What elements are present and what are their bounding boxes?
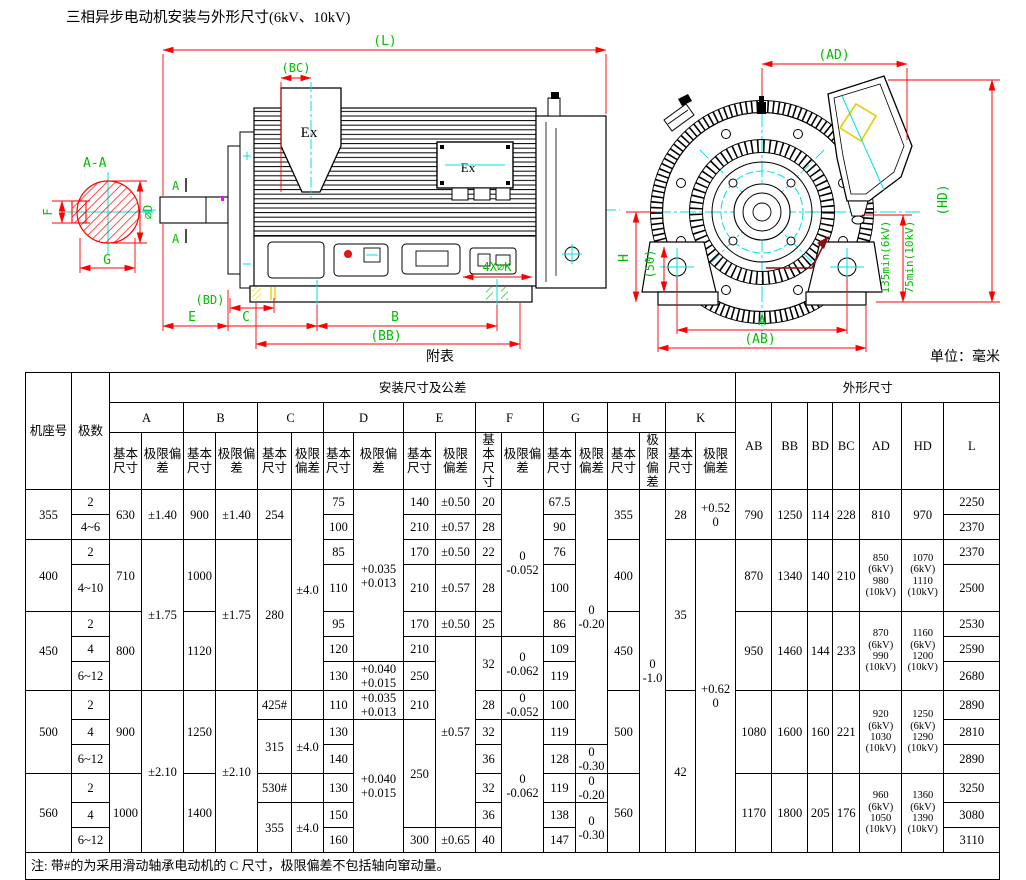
table-cell: 1600 bbox=[772, 691, 808, 774]
table-cell: 355 bbox=[608, 490, 640, 540]
table-cell: 42 bbox=[666, 691, 696, 853]
table-cell: 2370 bbox=[944, 515, 1000, 540]
table-cell: G bbox=[544, 403, 608, 433]
table-cell: 基本尺寸 bbox=[184, 433, 216, 490]
table-cell: 76 bbox=[544, 540, 576, 565]
table-cell: ±0.50 bbox=[436, 612, 476, 637]
table-cell: 2680 bbox=[944, 662, 1000, 691]
table-cell: 425# bbox=[258, 691, 292, 720]
table-cell: 210 bbox=[404, 637, 436, 662]
table-cell: L bbox=[944, 403, 1000, 490]
table-cell: 20 bbox=[476, 490, 502, 515]
table-cell: 280 bbox=[258, 540, 292, 691]
front-view: (AD) (HD) H (50) A (AB) 135min(6kV) 75mi… bbox=[617, 48, 1000, 352]
table-cell: 67.5 bbox=[544, 490, 576, 515]
table-cell: 4 bbox=[72, 720, 110, 745]
table-cell: 基本尺寸 bbox=[404, 433, 436, 490]
dim-label-f: F bbox=[41, 208, 55, 215]
table-cell: 114 bbox=[808, 490, 833, 540]
table-cell: 1250 bbox=[184, 691, 216, 774]
table-caption: 附表 bbox=[426, 346, 454, 366]
table-cell: 1170 bbox=[736, 774, 772, 853]
dim-label-ad: (AD) bbox=[818, 48, 849, 63]
table-cell: 4 bbox=[72, 637, 110, 662]
section-mark-a-top: A bbox=[172, 179, 180, 193]
table-row: 5002900±2.101250±2.10425#110+0.035 +0.01… bbox=[26, 691, 1000, 720]
table-cell: 0 -0.20 bbox=[576, 774, 608, 803]
table-cell: 注: 带#的为采用滑动轴承电动机的 C 尺寸，极限偏差不包括轴向窜动量。 bbox=[26, 853, 1000, 880]
table-cell: 110 bbox=[324, 565, 354, 612]
table-cell: 4~6 bbox=[72, 515, 110, 540]
table-cell: 基本尺寸 bbox=[258, 433, 292, 490]
table-cell: 500 bbox=[26, 691, 72, 774]
table-cell: 140 bbox=[808, 540, 833, 612]
table-cell: ±4.0 bbox=[292, 720, 324, 774]
table-cell: 900 bbox=[184, 490, 216, 540]
table-cell: 基本尺寸 bbox=[324, 433, 354, 490]
dim-label-bc: (BC) bbox=[282, 61, 311, 75]
table-cell: 基本尺寸 bbox=[608, 433, 640, 490]
table-cell: 极限偏差 bbox=[696, 433, 736, 490]
table-cell: 100 bbox=[544, 691, 576, 720]
table-cell: 400 bbox=[608, 540, 640, 612]
table-cell: 1070 (6kV) 1110 (10kV) bbox=[902, 540, 944, 612]
table-cell: 0 -0.052 bbox=[502, 490, 544, 637]
table-cell: 4 bbox=[72, 803, 110, 828]
table-cell: 870 bbox=[736, 540, 772, 612]
table-cell: 147 bbox=[544, 828, 576, 853]
dim-label-bb: (BB) bbox=[370, 329, 401, 344]
table-cell: 2 bbox=[72, 774, 110, 803]
dim-label-ab: (AB) bbox=[744, 332, 775, 347]
table-cell: 221 bbox=[833, 691, 860, 774]
dim-label-h: H bbox=[617, 254, 632, 262]
table-note-row: 注: 带#的为采用滑动轴承电动机的 C 尺寸，极限偏差不包括轴向窜动量。 bbox=[26, 853, 1000, 880]
table-cell: 250 bbox=[404, 662, 436, 691]
table-cell: ±0.57 bbox=[436, 515, 476, 540]
unit-label: 单位：毫米 bbox=[930, 346, 1000, 366]
table-cell: 1340 bbox=[772, 540, 808, 612]
table-cell: ±0.50 bbox=[436, 490, 476, 515]
table-cell: 基本尺寸 bbox=[110, 433, 142, 490]
table-cell: 2890 bbox=[944, 745, 1000, 774]
dim-label-l: (L) bbox=[373, 34, 396, 49]
table-cell: 160 bbox=[808, 691, 833, 774]
table-cell: 安装尺寸及公差 bbox=[110, 373, 736, 403]
table-cell: 4~10 bbox=[72, 565, 110, 612]
table-cell: 110 bbox=[324, 691, 354, 720]
table-cell: 233 bbox=[833, 612, 860, 691]
dim-label-135min: 135min(6kV) bbox=[879, 221, 892, 294]
table-cell: 170 bbox=[404, 612, 436, 637]
table-cell: 0 -0.052 bbox=[502, 691, 544, 720]
table-cell: 28 bbox=[476, 691, 502, 720]
table-cell: 1250 (6kV) 1290 (10kV) bbox=[902, 691, 944, 774]
table-cell: 基本尺寸 bbox=[666, 433, 696, 490]
table-cell: 极限偏差 bbox=[292, 433, 324, 490]
table-cell: 1160 (6kV) 1200 (10kV) bbox=[902, 612, 944, 691]
table-cell: 160 bbox=[324, 828, 354, 853]
indicator-dot bbox=[345, 251, 352, 258]
table-cell: 32 bbox=[476, 720, 502, 745]
table-cell: 0 -1.0 bbox=[640, 490, 666, 853]
table-cell: A bbox=[110, 403, 184, 433]
table-cell: 100 bbox=[324, 515, 354, 540]
table-cell: 36 bbox=[476, 803, 502, 828]
table-cell: 170 bbox=[404, 540, 436, 565]
table-cell: 500 bbox=[608, 691, 640, 774]
table-cell: 119 bbox=[544, 774, 576, 803]
dim-label-c: C bbox=[242, 310, 250, 325]
shaft-section bbox=[77, 181, 139, 243]
table-cell: 140 bbox=[404, 490, 436, 515]
table-cell: ±4.0 bbox=[292, 490, 324, 691]
table-cell: 1460 bbox=[772, 612, 808, 691]
table-cell: 6~12 bbox=[72, 745, 110, 774]
table-cell: 22 bbox=[476, 540, 502, 565]
table-cell: +0.035 +0.013 bbox=[354, 691, 404, 720]
table-cell: ±4.0 bbox=[292, 803, 324, 853]
table-cell: 450 bbox=[608, 612, 640, 691]
table-cell: 极限偏差 bbox=[576, 433, 608, 490]
table-cell: 128 bbox=[544, 745, 576, 774]
table-cell: 119 bbox=[544, 720, 576, 745]
table-cell: 300 bbox=[404, 828, 436, 853]
table-cell: F bbox=[476, 403, 544, 433]
dim-label-b: B bbox=[391, 310, 399, 325]
table-cell: 36 bbox=[476, 745, 502, 774]
table-cell: 极数 bbox=[72, 373, 110, 490]
table-cell: 1000 bbox=[110, 774, 142, 853]
table-cell: 710 bbox=[110, 540, 142, 612]
table-cell: +0.52 0 bbox=[696, 490, 736, 540]
dim-label-e: E bbox=[188, 310, 196, 325]
table-cell: 2 bbox=[72, 490, 110, 515]
table-cell: 1400 bbox=[184, 774, 216, 853]
table-cell: 630 bbox=[110, 490, 142, 540]
table-cell bbox=[292, 691, 324, 720]
table-cell: 850 (6kV) 980 (10kV) bbox=[860, 540, 902, 612]
table-cell: 1080 bbox=[736, 691, 772, 774]
table-cell: C bbox=[258, 403, 324, 433]
table-cell: 0 -0.062 bbox=[502, 720, 544, 853]
table-cell: 1360 (6kV) 1390 (10kV) bbox=[902, 774, 944, 853]
table-cell: +0.62 0 bbox=[696, 540, 736, 853]
table-cell: 极限偏差 bbox=[216, 433, 258, 490]
table-cell: 109 bbox=[544, 637, 576, 662]
table-cell: 315 bbox=[258, 720, 292, 774]
table-cell: 176 bbox=[833, 774, 860, 853]
table-cell: 极限偏差 bbox=[354, 433, 404, 490]
table-cell: +0.040 +0.015 bbox=[354, 662, 404, 691]
table-cell: 1250 bbox=[772, 490, 808, 540]
table-cell: 355 bbox=[26, 490, 72, 540]
table-cell bbox=[292, 774, 324, 803]
table-cell: 机座号 bbox=[26, 373, 72, 490]
spec-table: 机座号极数安装尺寸及公差外形尺寸ABCDEFGHKABBBBDBCADHDL基本… bbox=[25, 372, 1000, 880]
table-cell: 3250 bbox=[944, 774, 1000, 803]
table-cell: 86 bbox=[544, 612, 576, 637]
table-row: 3552630±1.40900±1.40254±4.075+0.035 +0.0… bbox=[26, 490, 1000, 515]
table-cell: 2 bbox=[72, 691, 110, 720]
table-cell: 810 bbox=[860, 490, 902, 540]
table-cell: B bbox=[184, 403, 258, 433]
table-cell: 6~12 bbox=[72, 828, 110, 853]
table-cell: 870 (6kV) 990 (10kV) bbox=[860, 612, 902, 691]
table-cell: 极限偏差 bbox=[436, 433, 476, 490]
table-cell: 极限偏差 bbox=[640, 433, 666, 490]
table-cell: 144 bbox=[808, 612, 833, 691]
dim-label-50: (50) bbox=[643, 250, 657, 279]
table-cell: 32 bbox=[476, 774, 502, 803]
table-cell: 1120 bbox=[184, 612, 216, 691]
table-cell: 3110 bbox=[944, 828, 1000, 853]
table-cell: 1000 bbox=[184, 540, 216, 612]
table-cell: 530# bbox=[258, 774, 292, 803]
table-cell: ±1.75 bbox=[216, 540, 258, 691]
ex-label-side: Ex bbox=[461, 160, 476, 175]
table-cell: 2890 bbox=[944, 691, 1000, 720]
section-label: A-A bbox=[83, 156, 107, 171]
dim-label-dia-d: ⌀D bbox=[141, 205, 155, 219]
dim-label-hd: (HD) bbox=[936, 184, 951, 215]
table-cell: 119 bbox=[544, 662, 576, 691]
table-cell: 90 bbox=[544, 515, 576, 540]
table-cell: +0.040 +0.015 bbox=[354, 720, 404, 853]
table-cell: ±1.40 bbox=[142, 490, 184, 540]
table-cell: 85 bbox=[324, 540, 354, 565]
dim-label-bd: (BD) bbox=[196, 293, 225, 307]
table-cell: BC bbox=[833, 403, 860, 490]
table-cell: 120 bbox=[324, 637, 354, 662]
table-cell: 40 bbox=[476, 828, 502, 853]
table-cell: ±1.40 bbox=[216, 490, 258, 540]
table-cell: 250 bbox=[404, 720, 436, 828]
table-cell: K bbox=[666, 403, 736, 433]
table-cell: AD bbox=[860, 403, 902, 490]
table-cell: 450 bbox=[26, 612, 72, 691]
table-cell: ±1.75 bbox=[142, 540, 184, 691]
table-cell: 140 bbox=[324, 745, 354, 774]
table-cell: 极限偏差 bbox=[142, 433, 184, 490]
table-cell: 2810 bbox=[944, 720, 1000, 745]
table-cell: 0 -0.062 bbox=[502, 637, 544, 691]
table-cell: ±0.57 bbox=[436, 637, 476, 828]
table-cell: ±2.10 bbox=[216, 691, 258, 853]
table-cell: 6~12 bbox=[72, 662, 110, 691]
table-cell: D bbox=[324, 403, 404, 433]
table-cell: ±0.65 bbox=[436, 828, 476, 853]
table-cell: 28 bbox=[666, 490, 696, 540]
table-cell: 95 bbox=[324, 612, 354, 637]
table-cell: 2 bbox=[72, 612, 110, 637]
table-cell: ±0.50 bbox=[436, 540, 476, 565]
table-cell: 极限偏差 bbox=[502, 433, 544, 490]
table-cell: H bbox=[608, 403, 666, 433]
section-mark-a-bottom: A bbox=[172, 232, 180, 246]
dim-label-a: A bbox=[758, 314, 766, 329]
table-cell: 2590 bbox=[944, 637, 1000, 662]
table-cell: 0 -0.30 bbox=[576, 803, 608, 853]
table-cell: 800 bbox=[110, 612, 142, 691]
table-cell: 基本尺寸 bbox=[544, 433, 576, 490]
table-cell: E bbox=[404, 403, 476, 433]
table-cell: 2530 bbox=[944, 612, 1000, 637]
table-cell: 32 bbox=[476, 637, 502, 691]
table-cell: 228 bbox=[833, 490, 860, 540]
table-cell: 25 bbox=[476, 612, 502, 637]
side-view: A A bbox=[142, 34, 620, 349]
table-cell: 210 bbox=[404, 515, 436, 540]
table-cell: 138 bbox=[544, 803, 576, 828]
dim-label-75min: 75min(10kV) bbox=[903, 221, 916, 294]
table-cell: 2370 bbox=[944, 540, 1000, 565]
table-cell: 2 bbox=[72, 540, 110, 565]
table-cell: 960 (6kV) 1050 (10kV) bbox=[860, 774, 902, 853]
table-cell: 790 bbox=[736, 490, 772, 540]
table-header: 机座号极数安装尺寸及公差外形尺寸ABCDEFGHKABBBBDBCADHDL基本… bbox=[26, 373, 1000, 490]
table-cell: 400 bbox=[26, 540, 72, 612]
table-cell: ±0.57 bbox=[436, 565, 476, 612]
table-cell: 0 -0.20 bbox=[576, 490, 608, 745]
table-cell: 205 bbox=[808, 774, 833, 853]
table-cell: 28 bbox=[476, 565, 502, 612]
dim-label-g: G bbox=[103, 253, 111, 268]
table-cell: 3080 bbox=[944, 803, 1000, 828]
table-cell: 2500 bbox=[944, 565, 1000, 612]
table-cell: 970 bbox=[902, 490, 944, 540]
table-cell: 100 bbox=[544, 565, 576, 612]
foot-hole-hatch bbox=[486, 287, 493, 300]
table-cell: 1800 bbox=[772, 774, 808, 853]
ex-label-top: Ex bbox=[301, 125, 318, 141]
table-cell: 560 bbox=[26, 774, 72, 853]
table-cell: 130 bbox=[324, 662, 354, 691]
technical-drawing: A-A F ⌀D G A A bbox=[0, 0, 1026, 366]
table-cell: 2250 bbox=[944, 490, 1000, 515]
table-cell: 28 bbox=[476, 515, 502, 540]
table-cell: 75 bbox=[324, 490, 354, 515]
table-cell: 950 bbox=[736, 612, 772, 691]
table-cell: 35 bbox=[666, 540, 696, 691]
table-body: 3552630±1.40900±1.40254±4.075+0.035 +0.0… bbox=[26, 490, 1000, 880]
table-cell: 210 bbox=[833, 540, 860, 612]
table-cell: 150 bbox=[324, 803, 354, 828]
table-cell: 基本尺寸 bbox=[476, 433, 502, 490]
table-cell: 0 -0.30 bbox=[576, 745, 608, 774]
table-cell: AB bbox=[736, 403, 772, 490]
table-cell: 254 bbox=[258, 490, 292, 540]
table-cell: 外形尺寸 bbox=[736, 373, 1000, 403]
section-view: A-A F ⌀D G bbox=[41, 156, 155, 273]
table-cell: 210 bbox=[404, 565, 436, 612]
table-cell: BB bbox=[772, 403, 808, 490]
table-cell: +0.035 +0.013 bbox=[354, 490, 404, 662]
table-cell: 210 bbox=[404, 691, 436, 720]
table-cell: 560 bbox=[608, 774, 640, 853]
table-cell: BD bbox=[808, 403, 833, 490]
table-cell: HD bbox=[902, 403, 944, 490]
table-cell: 355 bbox=[258, 803, 292, 853]
table-cell: ±2.10 bbox=[142, 691, 184, 853]
table-cell: 130 bbox=[324, 774, 354, 803]
table-cell: 920 (6kV) 1030 (10kV) bbox=[860, 691, 902, 774]
dim-label-4xk: 4X⌀K bbox=[483, 260, 513, 274]
table-cell: 900 bbox=[110, 691, 142, 774]
table-cell: 130 bbox=[324, 720, 354, 745]
